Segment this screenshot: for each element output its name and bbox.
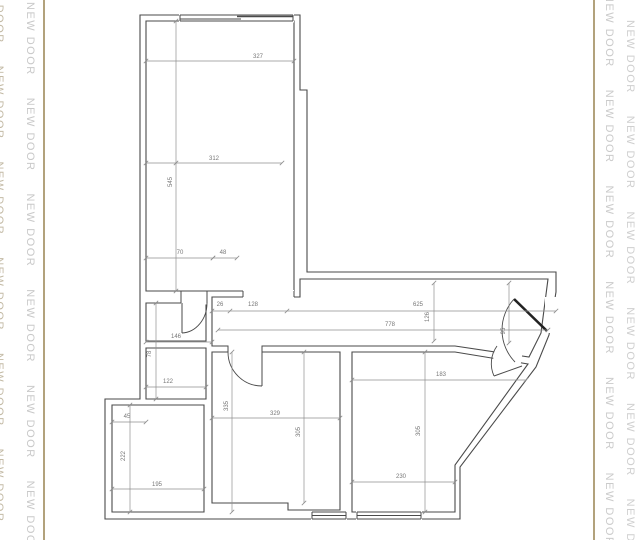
dimension-label: 128 [248, 302, 259, 308]
dimension-label: 146 [171, 334, 182, 340]
dimension-label: 329 [270, 411, 281, 417]
dimension-label: 48 [220, 250, 227, 256]
dimension-label: 778 [385, 322, 396, 328]
window-symbol-top [179, 14, 294, 23]
dimension-label: 545 [168, 176, 174, 187]
page: NEW DOORNEW DOORNEW DOORNEW DOORNEW DOOR… [0, 0, 640, 540]
dimension-label: 95 [501, 327, 507, 334]
dimension-label: 122 [163, 379, 174, 385]
dimension-label: 70 [177, 250, 184, 256]
door-symbol-hall [181, 291, 207, 333]
dimension-label: 305 [416, 425, 422, 436]
dimension-label: 78 [147, 350, 153, 357]
window-symbol-bottom-middle [311, 511, 347, 520]
passage-opening [243, 290, 294, 298]
dimension-label: 230 [396, 474, 407, 480]
dimension-layer: 3273125457048261286257781269514678122452… [110, 19, 558, 514]
dimension-label: 312 [209, 156, 220, 162]
dimension-label: 222 [121, 450, 127, 461]
dimension-label: 305 [296, 426, 302, 437]
floor-plan-svg: 3273125457048261286257781269514678122452… [0, 0, 640, 540]
walls [105, 15, 556, 519]
dimension-label: 195 [152, 482, 163, 488]
window-symbol-bottom-right [356, 511, 422, 520]
walls-path [105, 15, 556, 519]
dimension-label: 625 [413, 302, 424, 308]
dimension-label: 26 [217, 302, 224, 308]
dimension-label: 126 [425, 311, 431, 322]
dimension-label: 327 [253, 54, 264, 60]
door-symbol-right-room [491, 345, 523, 376]
dimension-label: 335 [224, 400, 230, 411]
dimension-label: 183 [436, 372, 447, 378]
